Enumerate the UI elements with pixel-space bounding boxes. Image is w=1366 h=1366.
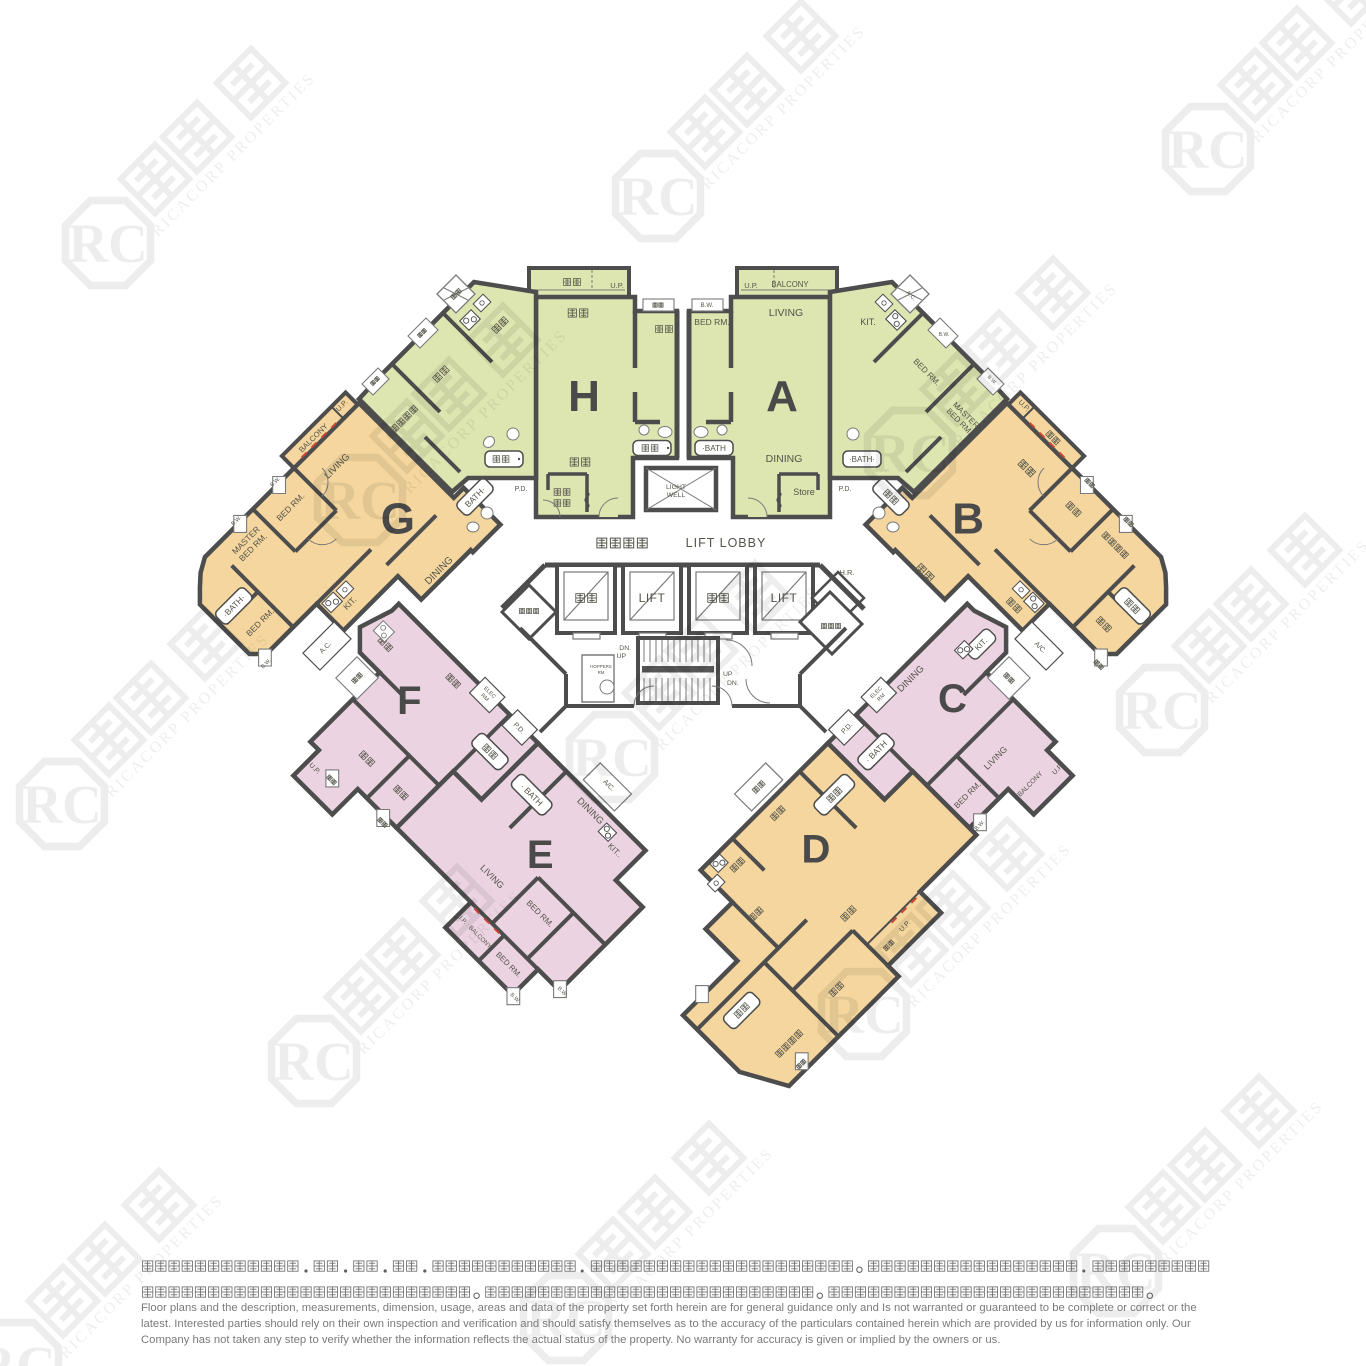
svg-text:RC: RC — [870, 423, 949, 484]
svg-text:D: D — [801, 827, 830, 871]
svg-text:F: F — [397, 679, 421, 723]
svg-text:LIGHT: LIGHT — [666, 484, 686, 491]
svg-text:LIFT LOBBY: LIFT LOBBY — [686, 536, 767, 550]
svg-text:LIVING: LIVING — [769, 307, 803, 319]
svg-text:RC: RC — [320, 470, 399, 531]
svg-text:B.W.: B.W. — [701, 303, 714, 309]
svg-text:DINING: DINING — [766, 453, 803, 465]
svg-text:B.W.: B.W. — [939, 332, 950, 338]
svg-text:UP: UP — [617, 653, 627, 660]
svg-text:RC: RC — [572, 727, 651, 788]
svg-text:DN.: DN. — [619, 645, 631, 652]
svg-text:KIT.: KIT. — [860, 317, 876, 327]
svg-text:BALCONY: BALCONY — [771, 280, 809, 289]
svg-text:C: C — [938, 677, 967, 721]
svg-text:RC: RC — [68, 213, 147, 274]
svg-text:RC: RC — [0, 1335, 56, 1366]
svg-text:RC: RC — [824, 984, 903, 1045]
svg-text:E: E — [527, 833, 554, 877]
svg-text:latest. Interested parties sho: latest. Interested parties should rely o… — [141, 1318, 1191, 1330]
svg-text:·BATH: ·BATH — [702, 444, 726, 453]
svg-text:H: H — [568, 372, 600, 421]
svg-text:B: B — [952, 494, 984, 543]
svg-text:RM: RM — [598, 670, 605, 675]
svg-text:RC: RC — [1122, 680, 1201, 741]
svg-text:U.P.: U.P. — [610, 281, 624, 290]
svg-text:A: A — [766, 372, 798, 421]
svg-text:U.P.: U.P. — [744, 281, 758, 290]
svg-text:Company has not taken any step: Company has not taken any step to verify… — [141, 1334, 1000, 1346]
svg-text:HOPPERS: HOPPERS — [590, 664, 612, 669]
svg-text:RC: RC — [22, 774, 101, 835]
svg-text:P.D.: P.D. — [515, 486, 528, 493]
svg-text:RC: RC — [1168, 119, 1247, 180]
svg-text:LIFT: LIFT — [639, 591, 666, 605]
svg-text:Store: Store — [793, 487, 815, 497]
svg-text:RC: RC — [274, 1031, 353, 1092]
svg-text:BED RM.: BED RM. — [694, 317, 729, 327]
svg-text:WELL: WELL — [667, 492, 686, 499]
svg-text:P.D.: P.D. — [839, 486, 852, 493]
svg-text:Floor plans and the descriptio: Floor plans and the description, measure… — [141, 1302, 1197, 1314]
svg-text:RC: RC — [618, 166, 697, 227]
